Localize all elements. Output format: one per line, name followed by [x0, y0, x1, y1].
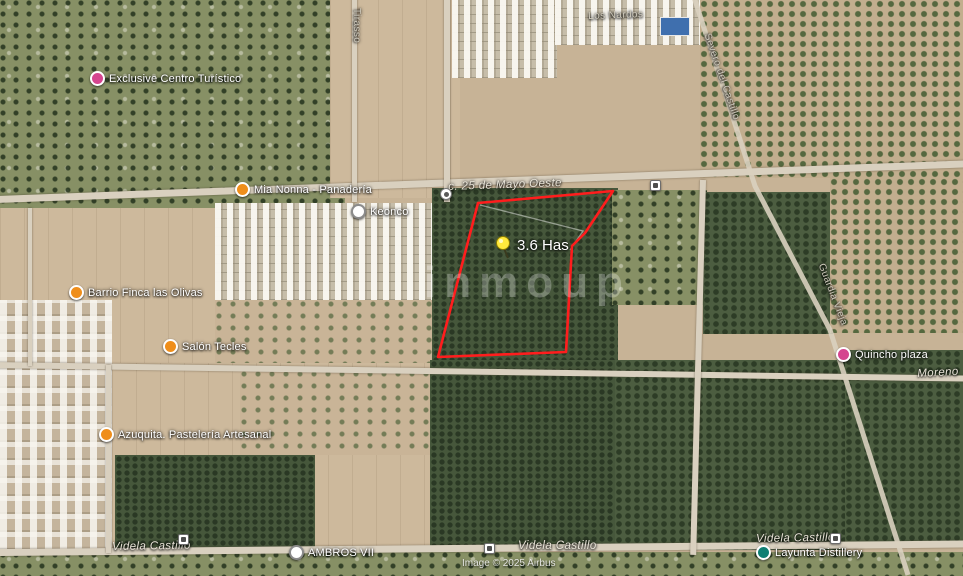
imagery-attribution: Image © 2025 Airbus — [462, 558, 556, 569]
neighborhood-icon — [69, 285, 84, 300]
poi-label: Layunta Distillery — [775, 547, 862, 559]
distillery-icon — [756, 545, 771, 560]
bus-stop-icon — [351, 204, 366, 219]
poi-label: Exclusive Centro Turístico — [109, 73, 241, 85]
bus-stop-icon[interactable] — [830, 533, 841, 544]
attraction-icon — [90, 71, 105, 86]
venue-icon — [163, 339, 178, 354]
attraction-icon — [836, 347, 851, 362]
poi-keonco[interactable]: Keonco — [351, 204, 409, 219]
street-label-videla-castillo-right: Videla Castillo — [756, 532, 835, 545]
street-label-los-nardos: Los Nardos — [588, 9, 643, 22]
bus-stop-icon[interactable] — [650, 180, 661, 191]
watermark: inmoup — [424, 258, 631, 308]
bakery-icon — [235, 182, 250, 197]
poi-quincho-plaza[interactable]: Quincho plaza — [836, 347, 928, 362]
area-label: 3.6 Has — [517, 237, 569, 254]
poi-barrio-finca-las-olivas[interactable]: Barrio Finca las Olivas — [69, 285, 203, 300]
poi-label: Mia Nonna - Panadería — [254, 184, 372, 196]
street-label-moreno: Moreno — [917, 366, 959, 380]
poi-mia-nonna-panaderia[interactable]: Mia Nonna - Panadería — [235, 182, 372, 197]
street-label-videla-castillo-center: Videla Castillo — [518, 540, 597, 552]
poi-layunta-distillery[interactable]: Layunta Distillery — [756, 545, 862, 560]
poi-label: Quincho plaza — [855, 349, 928, 361]
poi-label: Barrio Finca las Olivas — [88, 287, 203, 299]
poi-label: Salón Tecles — [182, 341, 247, 353]
poi-azuquita-pasteleria[interactable]: Azuquita. Pastelería Artesanal — [99, 427, 271, 442]
bus-stop-icon — [289, 545, 304, 560]
poi-label: Keonco — [370, 206, 409, 218]
area-pushpin-icon[interactable] — [494, 234, 516, 260]
poi-label: Azuquita. Pastelería Artesanal — [118, 429, 271, 441]
street-label-tirasso: Tirasso — [351, 8, 362, 43]
bakery-icon — [99, 427, 114, 442]
bus-stop-icon[interactable] — [484, 543, 495, 554]
poi-ambros-vii[interactable]: AMBROS VII — [289, 545, 374, 560]
satellite-map-canvas[interactable]: 3.6 Has c. 25 de Mayo Oeste Los Nardos T… — [0, 0, 963, 576]
poi-salon-tecles[interactable]: Salón Tecles — [163, 339, 247, 354]
bus-stop-icon[interactable] — [178, 534, 189, 545]
poi-exclusive-centro-turistico[interactable]: Exclusive Centro Turístico — [90, 71, 241, 86]
bus-stop-icon[interactable] — [440, 188, 452, 200]
poi-label: AMBROS VII — [308, 547, 374, 559]
